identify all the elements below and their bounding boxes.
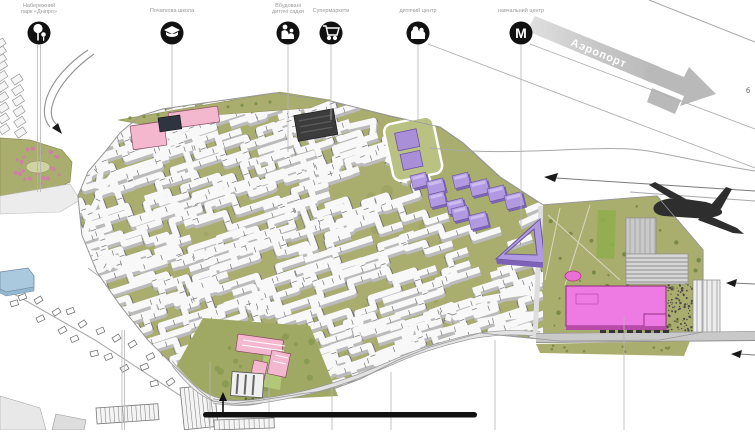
svg-text:Супермаркети: Супермаркети (313, 8, 350, 14)
svg-text:Набережний: Набережний (23, 2, 55, 9)
svg-text:дитячі садки: дитячі садки (272, 9, 304, 15)
svg-text:М: М (515, 25, 527, 41)
svg-text:дитячий центр: дитячий центр (399, 7, 436, 14)
svg-text:парк «Дніпро»: парк «Дніпро» (21, 9, 57, 15)
svg-text:Початкова школа: Початкова школа (150, 8, 195, 14)
svg-text:б: б (746, 87, 750, 95)
svg-text:навчальний центр: навчальний центр (498, 7, 544, 14)
